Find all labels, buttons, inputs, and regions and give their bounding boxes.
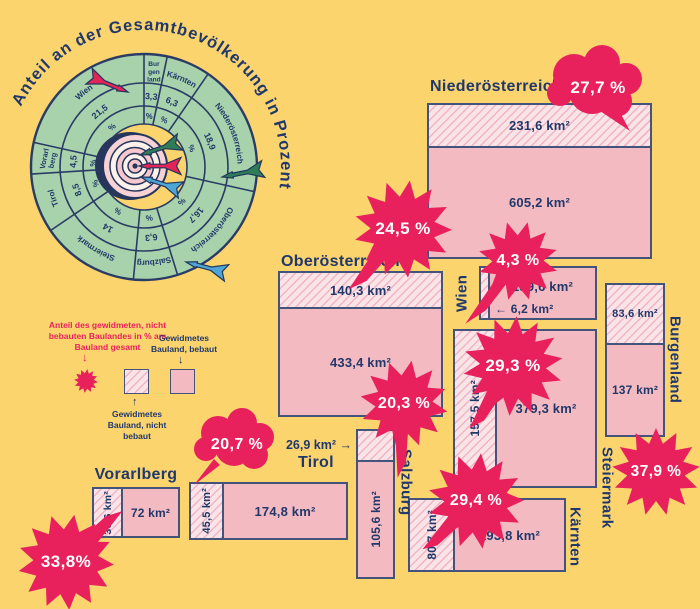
burgenland-pct-badge: 37,9 % <box>609 425 700 519</box>
wien-title: Wien <box>453 266 471 320</box>
wien-pct-badge: 4,3 % <box>475 218 561 304</box>
legend-built-swatch <box>170 369 195 394</box>
burgenland-built-value: 137 km² <box>612 383 658 397</box>
burgenland-built-area: 137 km² <box>607 345 663 435</box>
vorarlberg-pct-value: 33,8% <box>41 552 91 572</box>
steiermark-pct-value: 29,3 % <box>485 356 540 376</box>
salzburg-pct-value: 20,3 % <box>378 395 430 413</box>
niederoesterreich-built-value: 605,2 km² <box>509 195 570 210</box>
salzburg-built-area: 105,6 km² <box>358 462 393 577</box>
vorarlberg-built-value: 72 km² <box>131 506 170 520</box>
tirol-pct-value: 20,7 % <box>211 436 263 454</box>
donut-segment-value: 4,5 <box>68 155 79 168</box>
donut-segment-unit: % <box>145 213 153 223</box>
wien-pct-value: 4,3 % <box>497 252 540 270</box>
niederoesterreich-pct-value: 27,7 % <box>570 78 625 98</box>
tirol-unbuilt-value: 45,5 km² <box>201 488 213 534</box>
kaernten-pct-value: 29,4 % <box>450 492 502 510</box>
salzburg-built-value: 105,6 km² <box>369 491 383 548</box>
legend-built-label: Gewidmetes Bauland, bebaut <box>143 333 225 355</box>
steiermark-pct-badge: 29,3 % <box>460 313 566 419</box>
tirol-built-value: 174,8 km² <box>254 504 315 519</box>
vorarlberg-built-area: 72 km² <box>123 489 178 536</box>
burgenland-unbuilt-value: 83,6 km² <box>612 308 658 320</box>
niederoesterreich-pct-badge: 27,7 % <box>546 45 650 131</box>
legend-arrow-down-built-icon: ↓ <box>178 354 184 366</box>
oberoesterreich-unbuilt-value: 140,3 km² <box>330 283 391 298</box>
burgenland-pct-value: 37,9 % <box>631 463 682 481</box>
burgenland-title: Burgenland <box>666 288 684 432</box>
legend-arrow-down-pct-icon: ↓ <box>82 352 88 364</box>
burgenland-box: 83,6 km² 137 km² <box>605 283 665 437</box>
vorarlberg-pct-badge: 33,8% <box>15 511 117 609</box>
donut-segment-value: 3,3 <box>145 91 159 102</box>
legend-starburst-icon <box>71 366 101 396</box>
tirol-built-area: 174,8 km² <box>224 484 346 538</box>
kaernten-pct-badge: 29,4 % <box>425 450 527 552</box>
population-donut-chart: Burgenland3,3%Kärnten6,3%Niederösterreic… <box>0 8 310 308</box>
kaernten-title: Kärnten <box>566 503 584 571</box>
salzburg-unbuilt-value: 26,9 km² → <box>280 438 352 452</box>
tirol-title: Tirol <box>298 454 334 472</box>
donut-segment-name: Burgenland <box>147 61 161 83</box>
legend-unbuilt-label: Gewidmetes Bauland, nicht bebaut <box>96 409 178 443</box>
vorarlberg-title: Vorarlberg <box>92 466 180 484</box>
tirol-pct-badge: 20,7 % <box>192 407 282 483</box>
legend-arrow-up-unbuilt-icon: ↑ <box>132 396 138 408</box>
donut-segment-unit: % <box>145 111 153 121</box>
salzburg-box: 105,6 km² <box>356 429 395 579</box>
legend-unbuilt-swatch <box>124 369 149 394</box>
tirol-unbuilt-area: 45,5 km² <box>191 484 224 538</box>
donut-segment-value: 6,3 <box>145 232 159 243</box>
oberoesterreich-pct-badge: 24,5 % <box>351 177 455 281</box>
infographic-canvas: Burgenland3,3%Kärnten6,3%Niederösterreic… <box>0 0 700 609</box>
oberoesterreich-pct-value: 24,5 % <box>375 219 430 239</box>
niederoesterreich-title: Niederösterreich <box>430 78 562 96</box>
tirol-box: 45,5 km² 174,8 km² <box>189 482 348 540</box>
burgenland-unbuilt-area: 83,6 km² <box>607 285 663 345</box>
salzburg-pct-badge: 20,3 % <box>357 357 451 451</box>
